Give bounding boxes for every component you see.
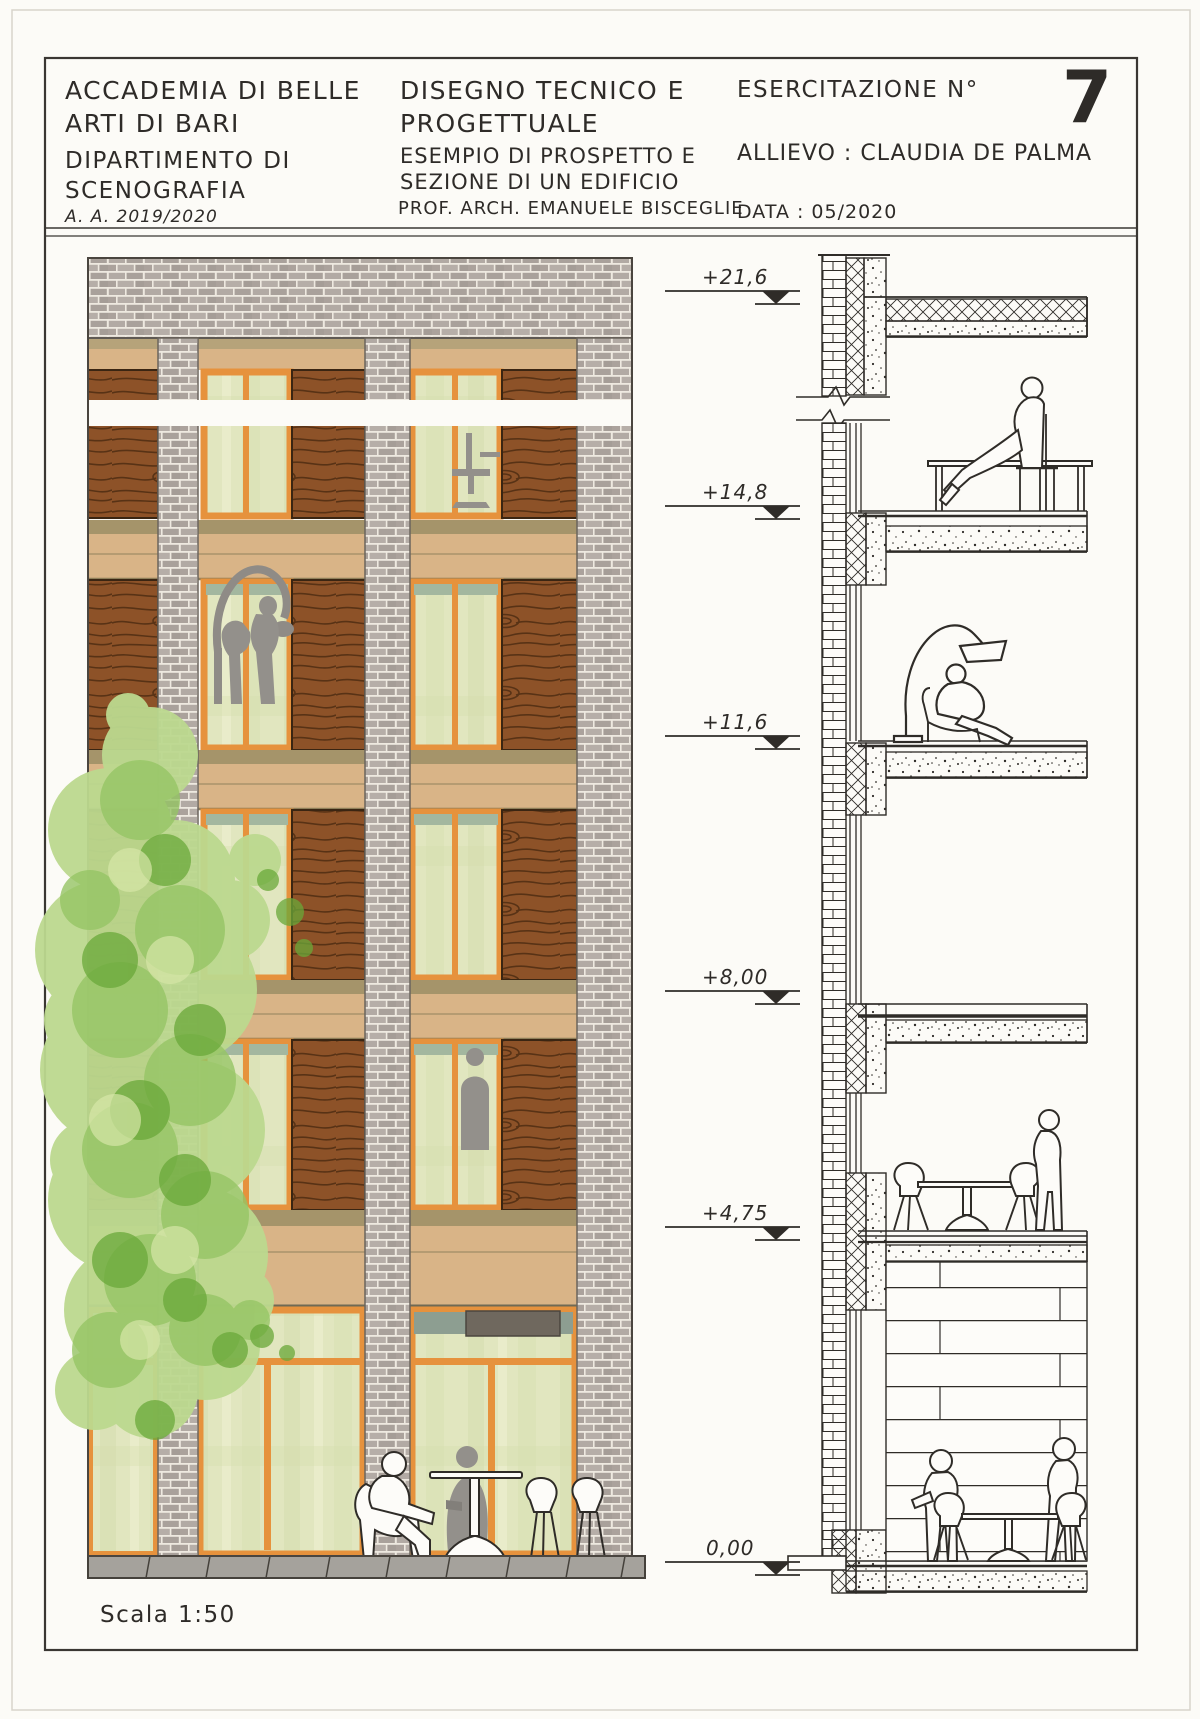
title-block: ACCADEMIA DI BELLE ARTI DI BARI DIPARTIM… [64, 55, 1112, 227]
marker-label: +11,6 [702, 710, 768, 734]
drawing-sheet: ACCADEMIA DI BELLE ARTI DI BARI DIPARTIM… [0, 0, 1200, 1719]
student-name: ALLIEVO : CLAUDIA DE PALMA [737, 141, 1092, 166]
date: DATA : 05/2020 [737, 201, 897, 223]
sidewalk [88, 1556, 645, 1578]
section-level-14-8-scene [928, 378, 1092, 512]
scale-label: Scala 1:50 [100, 1602, 236, 1628]
subject-line2: SEZIONE DI UN EDIFICIO [400, 170, 679, 194]
elevation-marker: +21,6 [665, 265, 800, 304]
elevation-break-band [86, 400, 634, 426]
elevation-marker: +4,75 [665, 1201, 800, 1240]
facade-top-brick-band [88, 258, 632, 338]
academic-year: A. A. 2019/2020 [64, 207, 218, 227]
course-line2: PROGETTUALE [400, 109, 599, 138]
elevation-marker: +14,8 [665, 480, 800, 519]
professor: PROF. ARCH. EMANUELE BISCEGLIE [398, 198, 744, 219]
marker-label: +8,00 [702, 965, 768, 989]
institution-line1: ACCADEMIA DI BELLE [65, 76, 361, 105]
slab-4-75 [858, 1231, 1087, 1262]
section-level-11-6-scene [894, 625, 1012, 745]
section-level-4-75-scene [894, 1110, 1062, 1230]
elevation-marker: +8,00 [665, 965, 800, 1004]
slab-8-00 [858, 1004, 1087, 1043]
institution-line2: ARTI DI BARI [65, 109, 240, 138]
section-wall-upper [818, 255, 890, 396]
building-section [788, 255, 1092, 1593]
marker-label: +14,8 [702, 480, 768, 504]
sheet-drawing: ACCADEMIA DI BELLE ARTI DI BARI DIPARTIM… [0, 0, 1200, 1719]
elevation-markers: +21,6 +14,8 +11,6 +8,00 +4,75 [665, 265, 800, 1575]
slab-14-8 [858, 511, 1087, 552]
ground-shutter-box [466, 1311, 560, 1336]
elevation-marker: 0,00 [665, 1536, 800, 1575]
marker-label: 0,00 [706, 1536, 755, 1560]
department-line2: SCENOGRAFIA [65, 178, 246, 204]
marker-label: +4,75 [702, 1201, 768, 1225]
section-wall-lower [822, 423, 886, 1593]
elevation-marker: +11,6 [665, 710, 800, 749]
subject-line1: ESEMPIO DI PROSPETTO E [400, 144, 696, 168]
facade-elevation: Scala 1:50 [35, 258, 645, 1628]
course-line1: DISEGNO TECNICO E [400, 76, 685, 105]
marker-label: +21,6 [702, 265, 768, 289]
exercise-number: 7 [1062, 55, 1112, 139]
department-line1: DIPARTIMENTO DI [65, 148, 291, 174]
slab-11-6 [858, 741, 1087, 778]
section-roof-slab [864, 297, 1087, 337]
exercise-label: ESERCITAZIONE N° [737, 77, 979, 103]
